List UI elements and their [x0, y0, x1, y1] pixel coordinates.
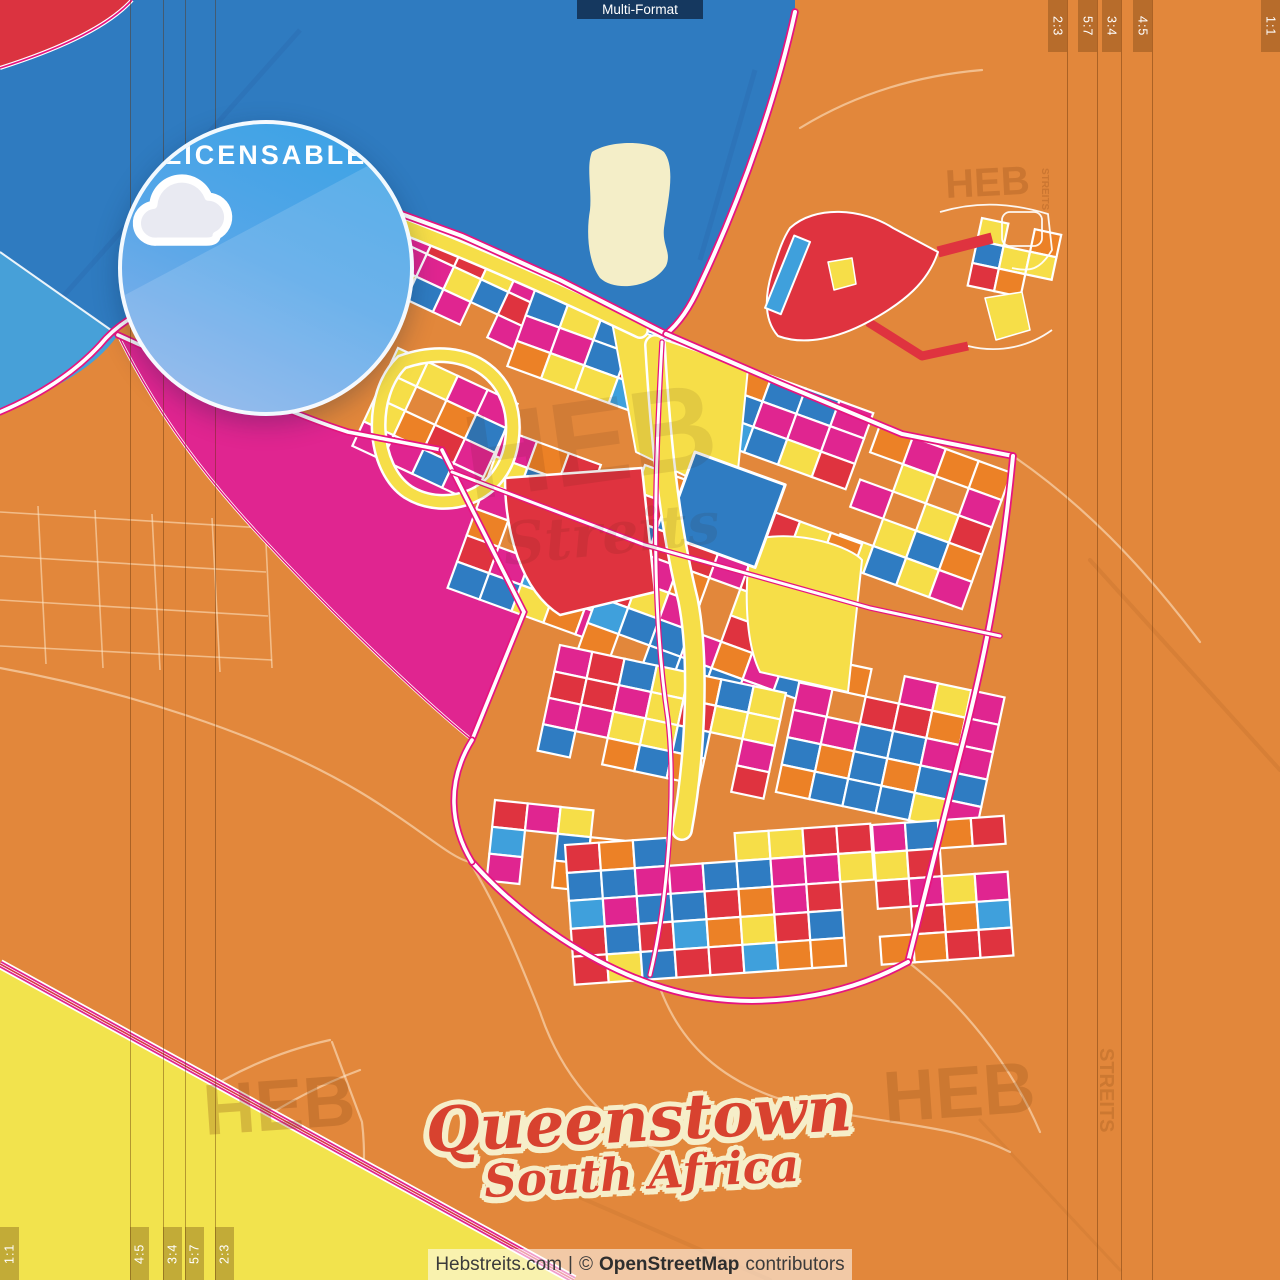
ratio-label-11-top: 1:1 — [1261, 0, 1280, 52]
download-arrow-icon — [122, 130, 180, 176]
cloud-download-icon — [122, 162, 250, 260]
attribution-copyright: © — [579, 1254, 593, 1276]
ratio-label-23-top: 2:3 — [1048, 0, 1067, 52]
ratio-label-57-bottom: 5:7 — [185, 1227, 204, 1280]
attribution-bar: Hebstreits.com | © OpenStreetMap contrib… — [428, 1249, 852, 1280]
ratio-label-45-top: 4:5 — [1133, 0, 1152, 52]
attribution-suffix: contributors — [745, 1254, 844, 1276]
ratio-label-34-bottom: 3:4 — [163, 1227, 182, 1280]
svg-text:HEB: HEB — [881, 1048, 1038, 1138]
island — [588, 143, 670, 286]
attribution-divider: | — [568, 1254, 573, 1276]
svg-text:HEB: HEB — [201, 1061, 358, 1151]
ratio-label-11-bottom: 1:1 — [0, 1227, 19, 1280]
ratio-label-57-top: 5:7 — [1078, 0, 1097, 52]
poster-title: Queenstown South Africa — [424, 1077, 856, 1208]
svg-text:STREITS: STREITS — [1039, 168, 1050, 211]
ratio-label-34-top: 3:4 — [1102, 0, 1121, 52]
ratio-label-23-bottom: 2:3 — [215, 1227, 234, 1280]
attribution-source: OpenStreetMap — [599, 1254, 739, 1276]
attribution-site: Hebstreits.com — [435, 1254, 562, 1276]
ratio-label-45-bottom: 4:5 — [130, 1227, 149, 1280]
svg-text:STREITS: STREITS — [1095, 1048, 1117, 1132]
map-poster-image: HEB Streits HEB HEB STREITS HEB STREITS … — [0, 0, 1280, 1280]
svg-text:HEB: HEB — [944, 159, 1031, 207]
format-tag: Multi-Format — [577, 0, 703, 19]
licensable-badge: LICENSABLE — [118, 120, 414, 416]
